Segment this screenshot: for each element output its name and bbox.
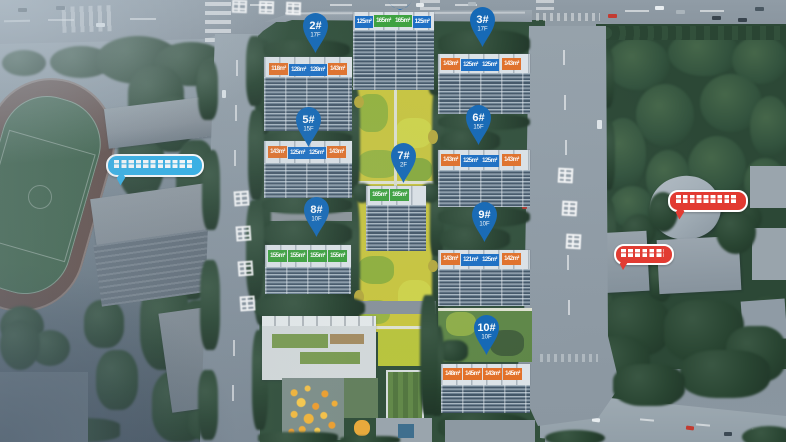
svg-text:5#: 5#: [302, 114, 314, 126]
svg-text:8#: 8#: [310, 204, 322, 216]
svg-text:17F: 17F: [477, 27, 488, 33]
svg-text:10F: 10F: [311, 217, 322, 223]
svg-text:17F: 17F: [310, 33, 321, 39]
svg-text:9#: 9#: [478, 209, 490, 221]
svg-text:10#: 10#: [477, 322, 495, 334]
svg-text:2#: 2#: [309, 20, 321, 32]
svg-text:3#: 3#: [476, 14, 488, 26]
svg-text:2F: 2F: [400, 163, 407, 169]
svg-text:10F: 10F: [481, 335, 492, 341]
svg-text:15F: 15F: [473, 125, 484, 131]
svg-text:6#: 6#: [472, 112, 484, 124]
svg-text:7#: 7#: [397, 150, 409, 162]
svg-text:15F: 15F: [303, 127, 314, 133]
svg-text:10F: 10F: [479, 222, 490, 228]
